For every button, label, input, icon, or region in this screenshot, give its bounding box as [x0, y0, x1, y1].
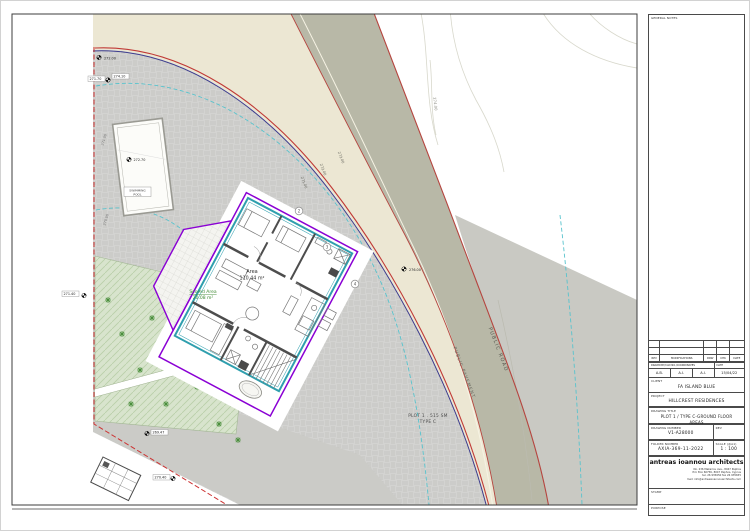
folder-number-value: AXIA-369-11-2022 [649, 447, 713, 452]
client-box: CLIENT FA ISLAND BLUE [648, 377, 745, 393]
benchmark-icon [145, 431, 149, 435]
drawing-number-label: DRAWING NUMBER [649, 425, 713, 430]
coordinates-value: A.I. [693, 369, 715, 377]
plot-label-line1: PLOT 1 . 515 SM [408, 413, 448, 419]
site-plan-drawing: SWIMMING POOL [0, 0, 750, 531]
folder-number-box: FOLDER NUMBER AXIA-369-11-2022 SCALE (@A… [648, 440, 745, 457]
drawing-title-label: DRAWING TITLE [649, 408, 744, 413]
rev-header-rev: REV [649, 355, 660, 361]
client-label: CLIENT [649, 378, 744, 383]
drawn-date-header: DATE [715, 363, 744, 368]
rev-header-modifications: MODIFICATIONS [660, 355, 704, 361]
survey-point-3: 3 [326, 245, 329, 250]
firm-box: antreas ioannou architects No. 236 Makar… [648, 456, 745, 489]
spot-272-00: 272.00 [104, 57, 116, 61]
rev-header-drw: DRW [704, 355, 717, 361]
rev-header-chk: CHK [717, 355, 729, 361]
rev-label: REV [714, 425, 744, 430]
cad-no-value: A.I. [671, 369, 693, 377]
spot-272-70: 272.70 [134, 158, 146, 162]
purpose-box: PURPOSE [648, 504, 745, 516]
spot-270-40: 270.40 [155, 476, 167, 480]
scale-value: 1 : 100 [714, 447, 744, 452]
spot-269-47: 269.47 [153, 431, 165, 435]
firm-address-line4: mail: info@antreasioannouarchitects.com [649, 478, 741, 481]
folder-number-label: FOLDER NUMBER [649, 441, 713, 446]
scored-area-value: 20.08 m² [193, 295, 214, 301]
survey-point-2: 2 [298, 209, 301, 214]
firm-name: antreas ioannou architects [649, 459, 744, 466]
benchmark-icon [171, 476, 175, 480]
project-box: PROJECT HILLCREST RESIDENCES [648, 392, 745, 408]
spot-274-10: 274.10 [114, 75, 126, 79]
spot-276-00: 276.00 [409, 268, 421, 272]
benchmark-icon [106, 78, 110, 82]
project-value: HILLCREST RESIDENCES [649, 399, 744, 404]
purpose-label: PURPOSE [649, 505, 744, 510]
general-notes-label: GENERAL NOTES [649, 15, 744, 20]
date-value: 15/04/22 [715, 369, 744, 377]
drawing-sheet: SWIMMING POOL [0, 0, 750, 531]
benchmark-icon [127, 157, 131, 161]
stamp-box: STAMP [648, 488, 745, 505]
benchmark-icon [97, 55, 101, 59]
project-label: PROJECT [649, 393, 744, 398]
benchmark-icon [82, 293, 86, 297]
scored-area-label: Scored Area [189, 289, 216, 295]
title-block: GENERAL NOTES REV MODIFICATIONS DRW CHK … [648, 14, 745, 516]
drawn-by-value: A.B. [649, 369, 671, 377]
rev-header-date: DATE [730, 355, 744, 361]
spot-271-40: 271.40 [64, 292, 76, 296]
drawing-number-value: V1-A28000 [649, 431, 713, 436]
stamp-label: STAMP [649, 489, 744, 494]
drawn-by-box: DRAWN BY/CAD NO./COORDINATES DATE A.B. A… [648, 362, 745, 378]
drawing-number-box: DRAWING NUMBER V1-A28000 REV [648, 424, 745, 441]
firm-address: No. 236 Makariou Ave., 8047 Paphos P.O. … [649, 466, 744, 481]
swimming-pool [113, 118, 174, 215]
spot-271-70: 271.70 [90, 77, 102, 81]
plot-label-line2: TYPE C [419, 419, 437, 425]
scale-label: SCALE (@A1) [714, 441, 744, 446]
drawing-title-line1: PLOT 1 / TYPE C-GROUND FLOOR [649, 414, 744, 419]
general-notes-box: GENERAL NOTES [648, 14, 745, 341]
pool-label-line2: POOL [133, 193, 142, 197]
area-label: Area [246, 269, 258, 275]
area-value: 110.44 m² [240, 276, 265, 282]
client-value: FA ISLAND BLUE [649, 385, 744, 390]
drawn-by-header: DRAWN BY/CAD NO./COORDINATES [649, 363, 715, 368]
survey-point-4: 4 [354, 282, 357, 287]
benchmark-icon [402, 267, 406, 271]
drawing-title-box: DRAWING TITLE PLOT 1 / TYPE C-GROUND FLO… [648, 407, 745, 425]
